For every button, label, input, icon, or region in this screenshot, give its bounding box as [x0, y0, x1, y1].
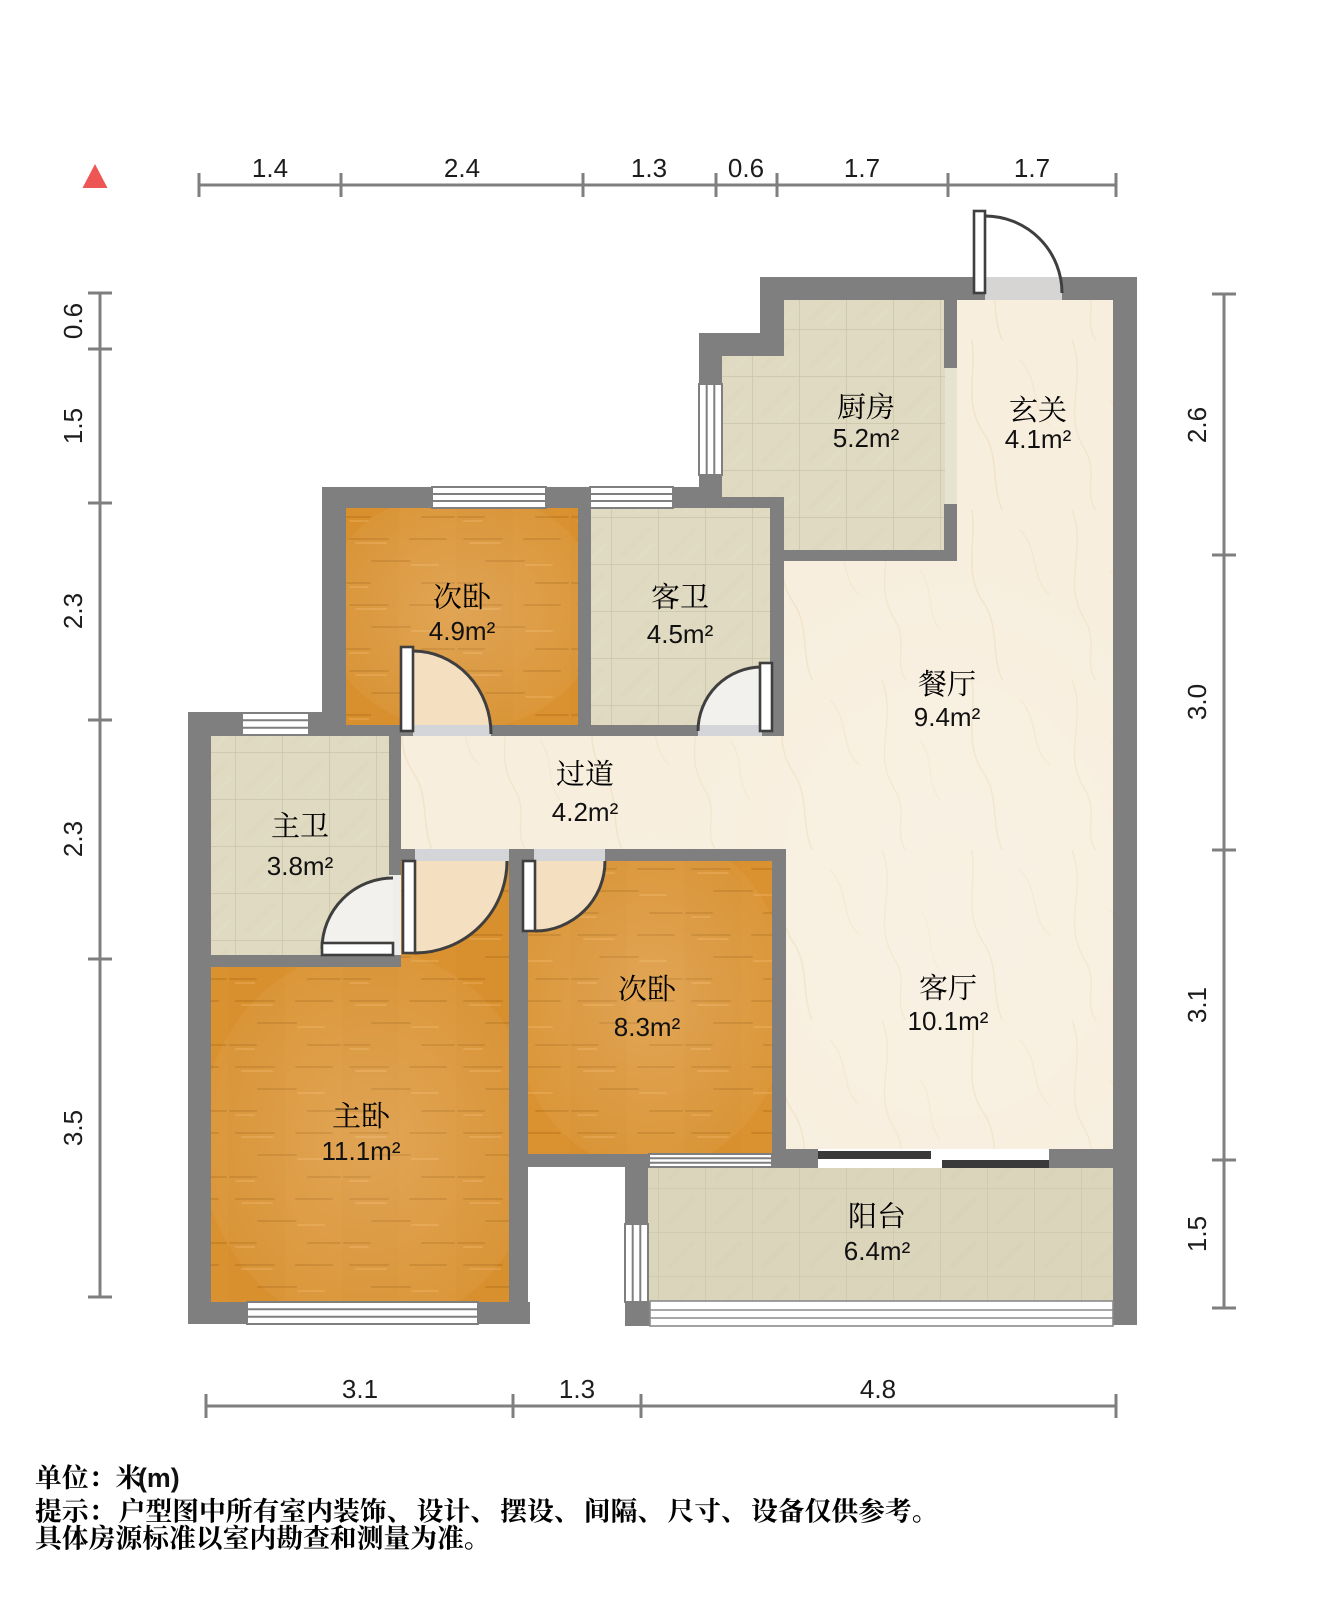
svg-text:0.6: 0.6 — [728, 153, 764, 183]
svg-text:5.2m²: 5.2m² — [833, 423, 900, 453]
svg-text:3.0: 3.0 — [1182, 684, 1212, 720]
svg-text:4.2m²: 4.2m² — [552, 797, 619, 827]
svg-text:4.9m²: 4.9m² — [429, 616, 496, 646]
svg-text:2.4: 2.4 — [444, 153, 480, 183]
svg-text:1.3: 1.3 — [559, 1374, 595, 1404]
svg-text:4.8: 4.8 — [860, 1374, 896, 1404]
svg-text:4.1m²: 4.1m² — [1005, 424, 1072, 454]
svg-text:1.7: 1.7 — [844, 153, 880, 183]
svg-text:6.4m²: 6.4m² — [844, 1236, 911, 1266]
svg-text:3.5: 3.5 — [58, 1110, 88, 1146]
svg-text:3.8m²: 3.8m² — [267, 851, 334, 881]
svg-text:4.5m²: 4.5m² — [647, 619, 714, 649]
svg-text:11.1m²: 11.1m² — [322, 1136, 401, 1166]
svg-text:1.7: 1.7 — [1014, 153, 1050, 183]
svg-text:2.6: 2.6 — [1182, 407, 1212, 443]
svg-text:1.5: 1.5 — [58, 408, 88, 444]
svg-text:3.1: 3.1 — [1182, 987, 1212, 1023]
svg-text:(m): (m) — [138, 1463, 180, 1493]
svg-text:2.3: 2.3 — [58, 821, 88, 857]
svg-text:10.1m²: 10.1m² — [908, 1006, 989, 1036]
svg-text:1.4: 1.4 — [252, 153, 288, 183]
svg-text:1.3: 1.3 — [631, 153, 667, 183]
svg-text:3.1: 3.1 — [342, 1374, 378, 1404]
svg-text:9.4m²: 9.4m² — [914, 702, 981, 732]
svg-text:1.5: 1.5 — [1182, 1216, 1212, 1252]
svg-text:8.3m²: 8.3m² — [614, 1012, 681, 1042]
svg-text:0.6: 0.6 — [58, 303, 88, 339]
svg-text:2.3: 2.3 — [58, 593, 88, 629]
